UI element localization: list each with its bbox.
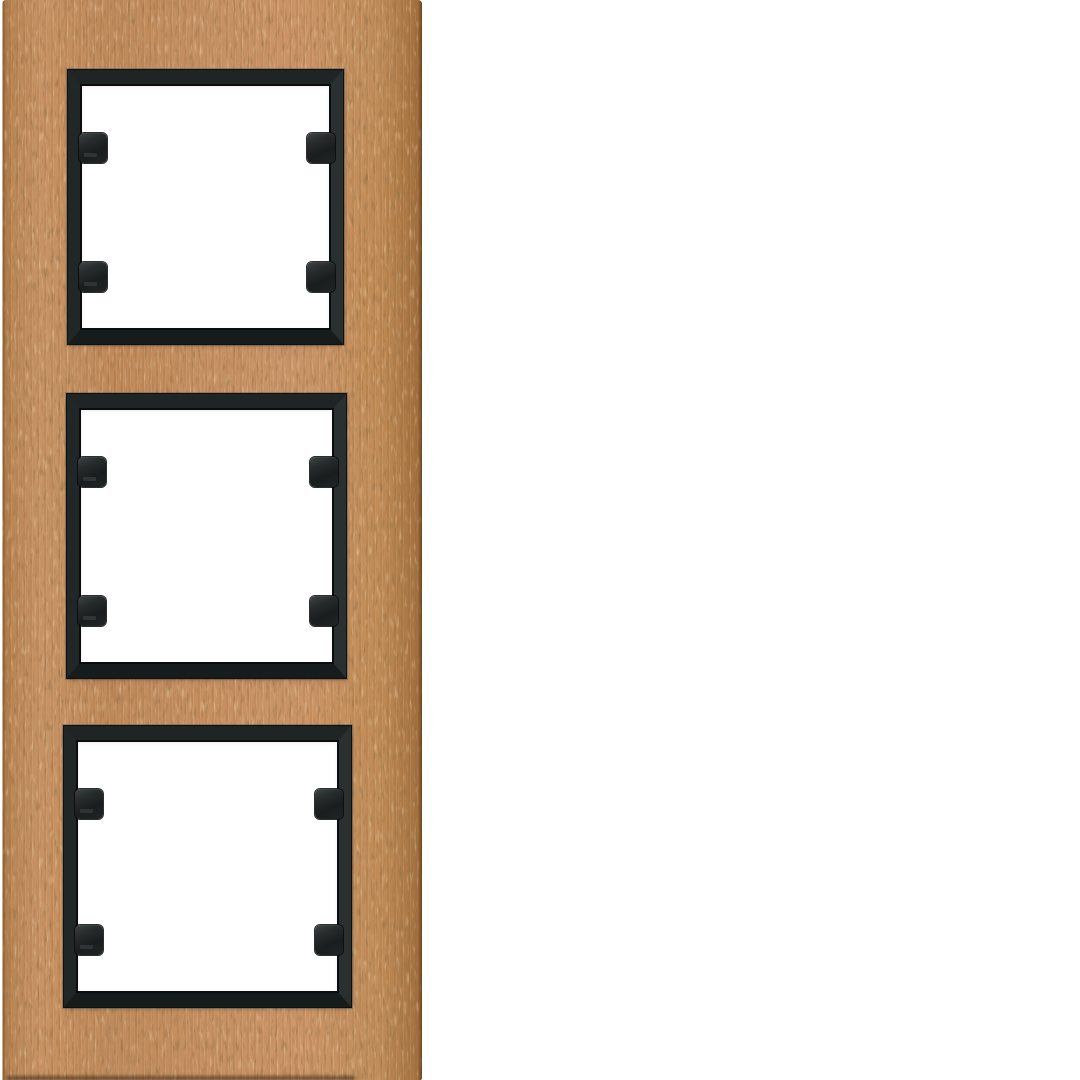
mounting-clip-bottom-left bbox=[78, 596, 106, 626]
plate-left-edge-shade bbox=[2, 0, 6, 1080]
mounting-clip-top-right bbox=[310, 457, 338, 487]
mounting-clip-bottom-right bbox=[307, 262, 335, 292]
plate-contact-shadow bbox=[7, 1076, 355, 1080]
module-opening-2 bbox=[67, 394, 346, 678]
module-opening-3 bbox=[64, 726, 351, 1007]
mounting-clip-top-left bbox=[79, 133, 107, 163]
mounting-clip-top-left bbox=[75, 789, 103, 819]
wood-frame-plate bbox=[2, 0, 422, 1080]
mounting-clip-bottom-right bbox=[315, 925, 343, 955]
module-opening-1 bbox=[68, 70, 343, 344]
mounting-clip-top-left bbox=[78, 457, 106, 487]
mounting-clip-bottom-right bbox=[310, 596, 338, 626]
plate-right-edge-shade bbox=[417, 0, 422, 1080]
mounting-clip-bottom-left bbox=[79, 262, 107, 292]
mounting-clip-top-right bbox=[307, 133, 335, 163]
mounting-clip-top-right bbox=[315, 789, 343, 819]
product-photo-canvas bbox=[0, 0, 1080, 1080]
mounting-clip-bottom-left bbox=[75, 925, 103, 955]
